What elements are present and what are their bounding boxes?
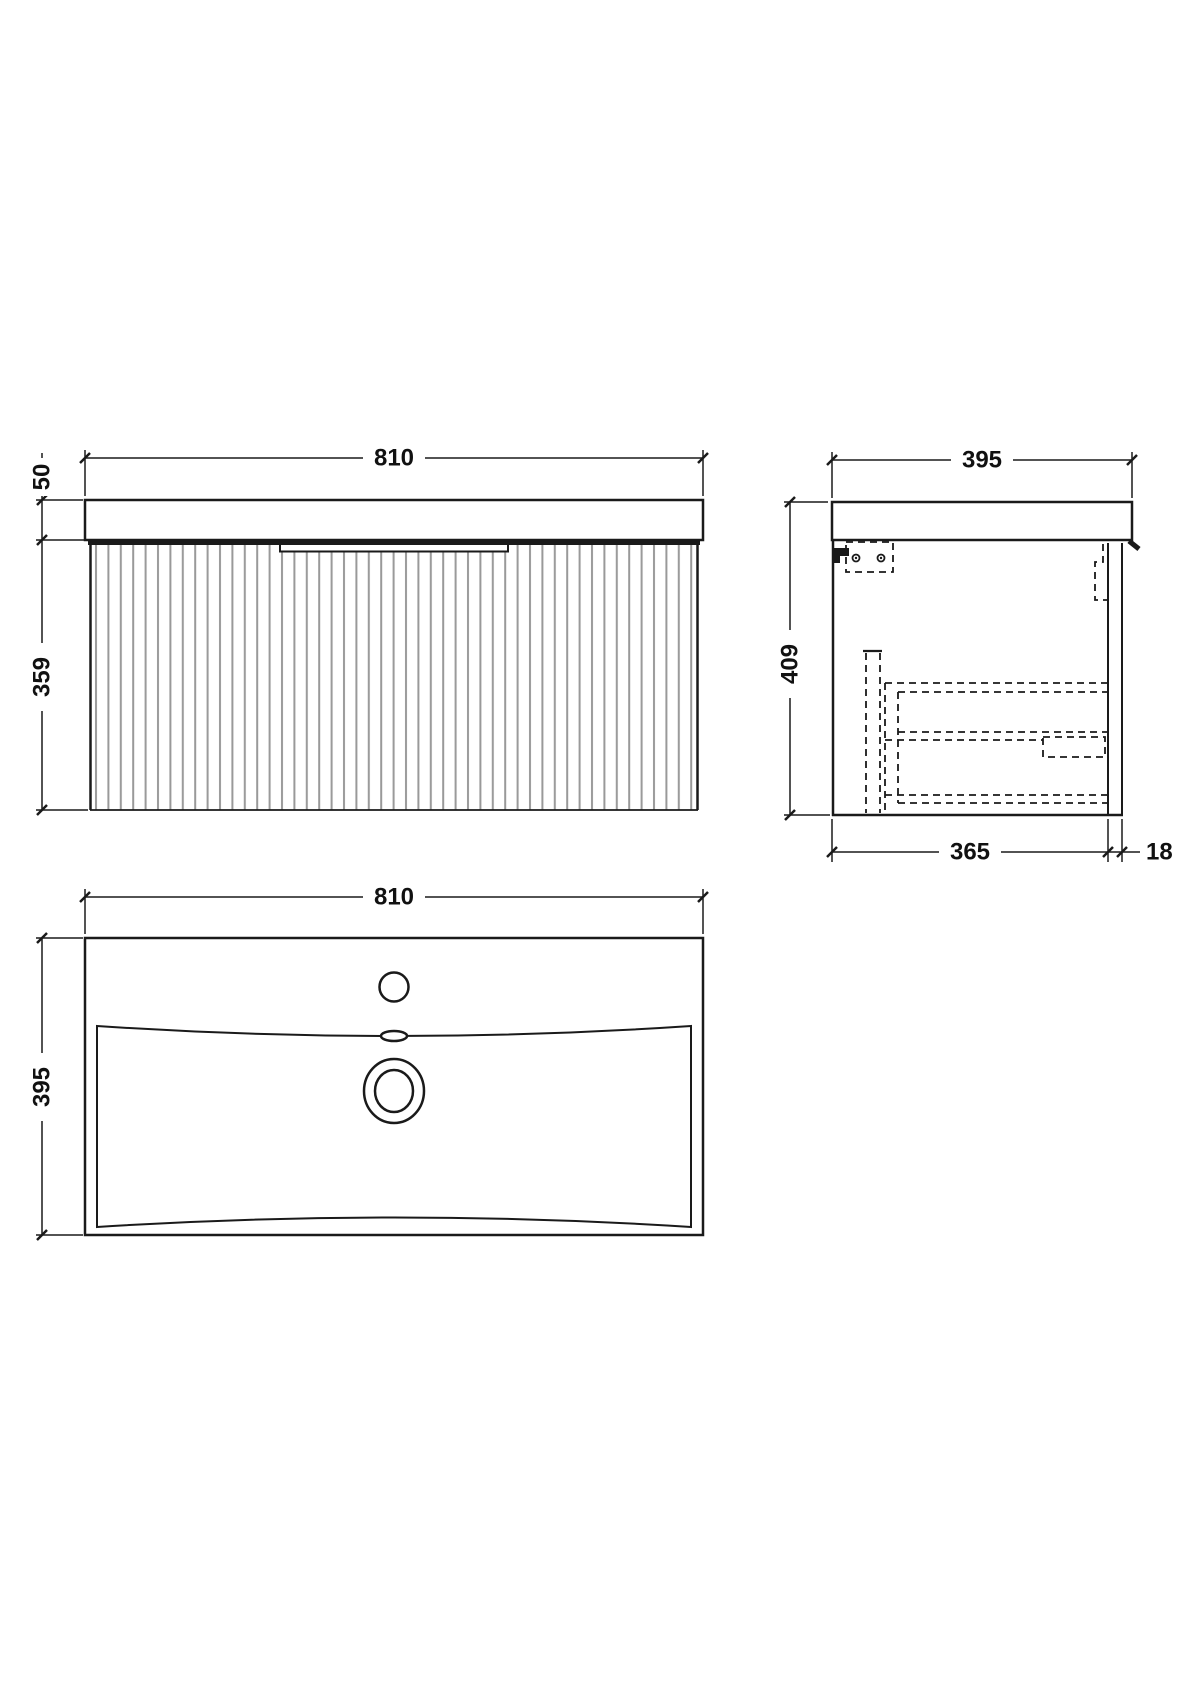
basin-drain [364, 1059, 424, 1123]
side-cabinet-outline [832, 540, 1123, 816]
side-height-dimension-label: 409 [777, 644, 804, 684]
side-depth-dimension: 395 [827, 447, 1137, 499]
front-handle-recess [279, 544, 509, 552]
side-cabinet-depth-label: 365 [950, 839, 990, 866]
drawing-sheet: 810 50 359 [0, 0, 1200, 1698]
basin-overflow [381, 1031, 407, 1041]
basin-plan-view: 810 395 [28, 884, 708, 1241]
side-wall-bracket [832, 542, 893, 572]
front-cabinet-height-dimension: 359 [28, 540, 88, 815]
front-view: 810 50 359 [28, 445, 708, 816]
side-worktop [832, 502, 1132, 540]
front-width-dimension-label: 810 [374, 445, 414, 472]
front-worktop-thickness-dimension: 50 [29, 453, 89, 545]
side-bottom-dimensions: 365 18 [827, 819, 1173, 866]
side-height-dimension: 409 [776, 497, 830, 820]
front-cabinet-height-label: 359 [29, 657, 56, 697]
technical-drawing: 810 50 359 [0, 0, 1200, 1698]
front-fluted-panel [88, 542, 700, 810]
basin-width-dimension: 810 [80, 884, 708, 935]
side-front-panel-thickness-label: 18 [1146, 839, 1173, 866]
front-worktop [85, 500, 703, 540]
side-worktop-front-lip [1129, 541, 1139, 549]
front-worktop-thickness-label: 50 [29, 464, 56, 491]
side-front-panel-fixing [1095, 544, 1108, 600]
basin-width-dimension-label: 810 [374, 884, 414, 911]
side-depth-dimension-label: 395 [962, 447, 1002, 474]
basin-depth-dimension-label: 395 [29, 1067, 56, 1107]
front-width-dimension: 810 [80, 445, 708, 497]
basin-depth-dimension: 395 [28, 933, 83, 1240]
side-view: 395 409 365 18 [776, 447, 1173, 866]
basin-tap-hole [380, 973, 409, 1002]
side-drawer-runner [863, 651, 882, 813]
side-drawer-box [885, 683, 1107, 815]
